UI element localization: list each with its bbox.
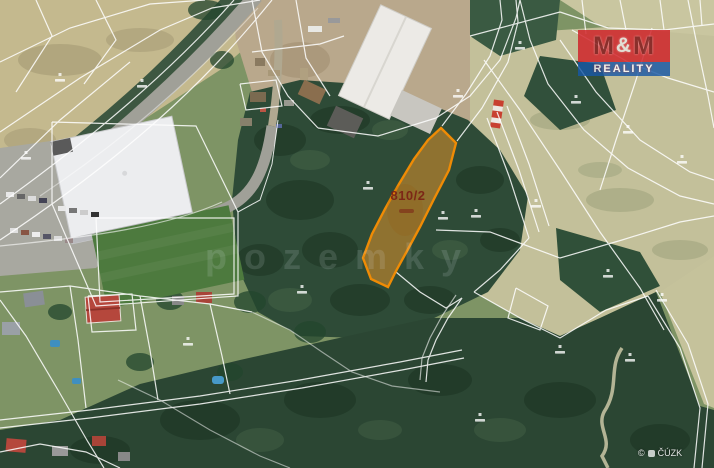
pool	[212, 376, 224, 384]
map-viewport: 810/2 pozemky M&M REALITY © ČÚZK	[0, 0, 714, 468]
pool	[50, 340, 60, 347]
pool	[72, 378, 81, 384]
cadastral-aerial-map	[0, 0, 714, 468]
